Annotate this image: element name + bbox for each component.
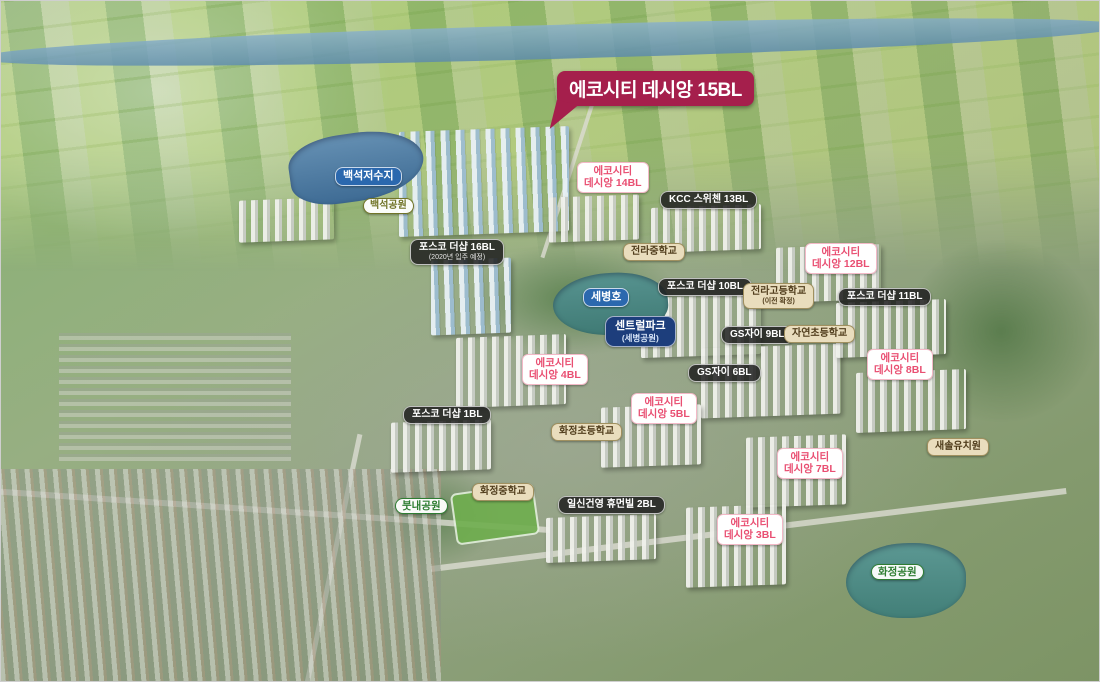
label-sebyeong-lake: 세병호: [583, 288, 629, 307]
label-desian-8bl: 에코시티데시앙 8BL: [867, 349, 933, 380]
label-kcc-switzen-13bl: KCC 스위첸 13BL: [660, 191, 757, 209]
apartment-cluster-15bl: [399, 126, 569, 237]
lowrise-district: [59, 329, 291, 461]
label-gs-xi-6bl: GS자이 6BL: [688, 364, 761, 382]
label-desian-14bl: 에코시티데시앙 14BL: [577, 162, 649, 193]
label-desian-4bl: 에코시티데시앙 4BL: [522, 354, 588, 385]
label-jeonra-middle-school: 전라중학교: [623, 243, 685, 261]
label-butnae-park: 붓내공원: [395, 498, 448, 514]
label-saesol-kindergarten: 새솔유치원: [927, 438, 989, 456]
apartment-cluster-16bl: [431, 258, 511, 336]
label-jayeon-elementary-school: 자연초등학교: [784, 325, 855, 343]
label-hwajeong-middle-school: 화정중학교: [472, 483, 534, 501]
label-desian-7bl: 에코시티데시앙 7BL: [777, 448, 843, 479]
label-hwajeong-elementary-school: 화정초등학교: [551, 423, 622, 441]
label-baekseok-reservoir: 백석저수지: [335, 167, 402, 186]
apartment-cluster-14bl: [549, 194, 639, 242]
apartment-cluster-2bl: [546, 514, 656, 563]
main-callout-label: 에코시티 데시앙 15BL: [569, 80, 742, 101]
label-jeonra-high-school: 전라고등학교(이전 확정): [743, 283, 814, 309]
label-desian-3bl: 에코시티데시앙 3BL: [717, 514, 783, 545]
label-central-park: 센트럴파크(세병공원): [605, 316, 676, 347]
main-callout-desian-15bl: 에코시티 데시앙 15BL: [557, 71, 754, 106]
label-posco-16bl: 포스코 더샵 16BL(2020년 입주 예정): [410, 239, 504, 265]
label-gs-xi-9bl: GS자이 9BL: [721, 326, 794, 344]
label-posco-10bl: 포스코 더샵 10BL: [658, 278, 752, 296]
label-posco-1bl: 포스코 더샵 1BL: [403, 406, 491, 424]
label-hwajeong-park: 화정공원: [871, 564, 924, 580]
label-baekseok-park: 백석공원: [363, 198, 414, 214]
hwajeong-pond-water: [846, 543, 966, 618]
label-desian-5bl: 에코시티데시앙 5BL: [631, 393, 697, 424]
label-ilshin-humanville-2bl: 일신건영 휴먼빌 2BL: [558, 496, 665, 514]
old-town-district: [1, 469, 441, 682]
label-desian-12bl: 에코시티데시앙 12BL: [805, 243, 877, 274]
apartment-cluster-1bl: [391, 419, 491, 472]
label-posco-11bl: 포스코 더샵 11BL: [838, 288, 931, 306]
aerial-birdseye-map: 에코시티 데시앙 15BL 백석저수지 백석공원 에코시티데시앙 14BL KC…: [0, 0, 1100, 682]
